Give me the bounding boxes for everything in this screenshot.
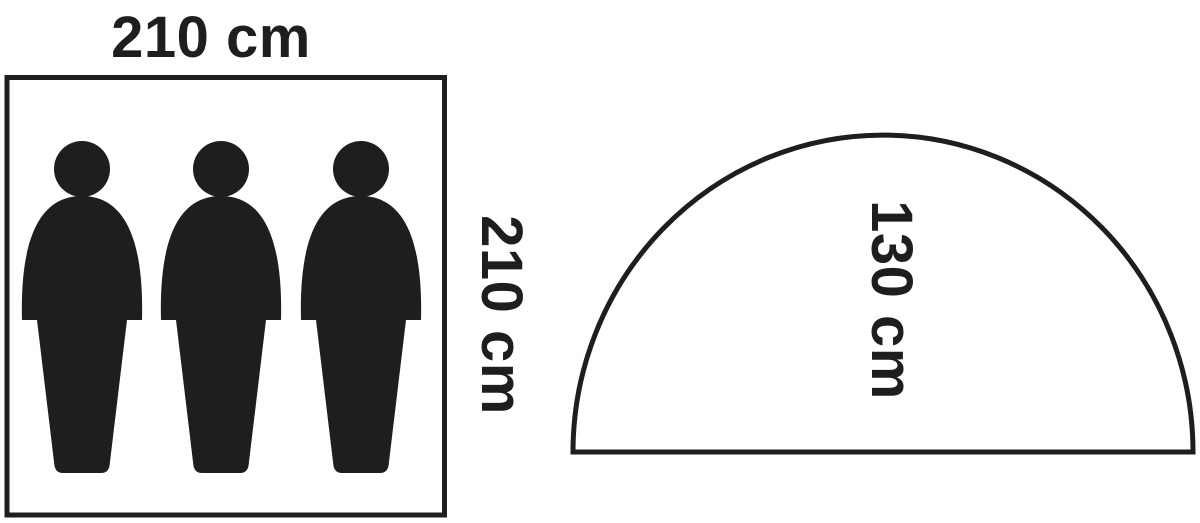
peak-height-label: 130 cm bbox=[859, 200, 924, 400]
occupancy-icons bbox=[22, 141, 421, 473]
diagram-canvas: 210 cm 210 cm 130 cm bbox=[0, 0, 1200, 523]
floor-width-label: 210 cm bbox=[111, 5, 311, 70]
tent-dimensions-diagram: 210 cm 210 cm 130 cm bbox=[0, 0, 1200, 523]
floor-depth-label: 210 cm bbox=[469, 215, 534, 415]
